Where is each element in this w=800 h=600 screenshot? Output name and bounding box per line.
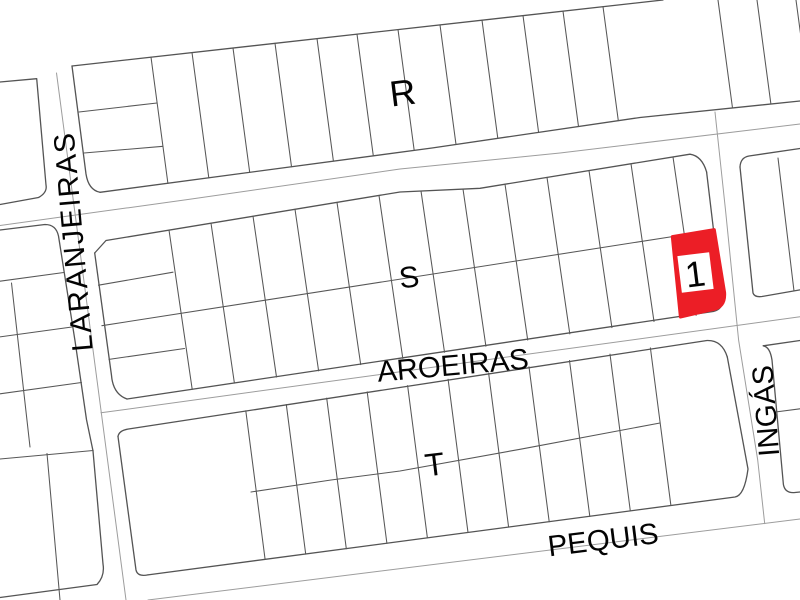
svg-text:S: S <box>397 260 421 295</box>
svg-text:R: R <box>387 71 418 115</box>
